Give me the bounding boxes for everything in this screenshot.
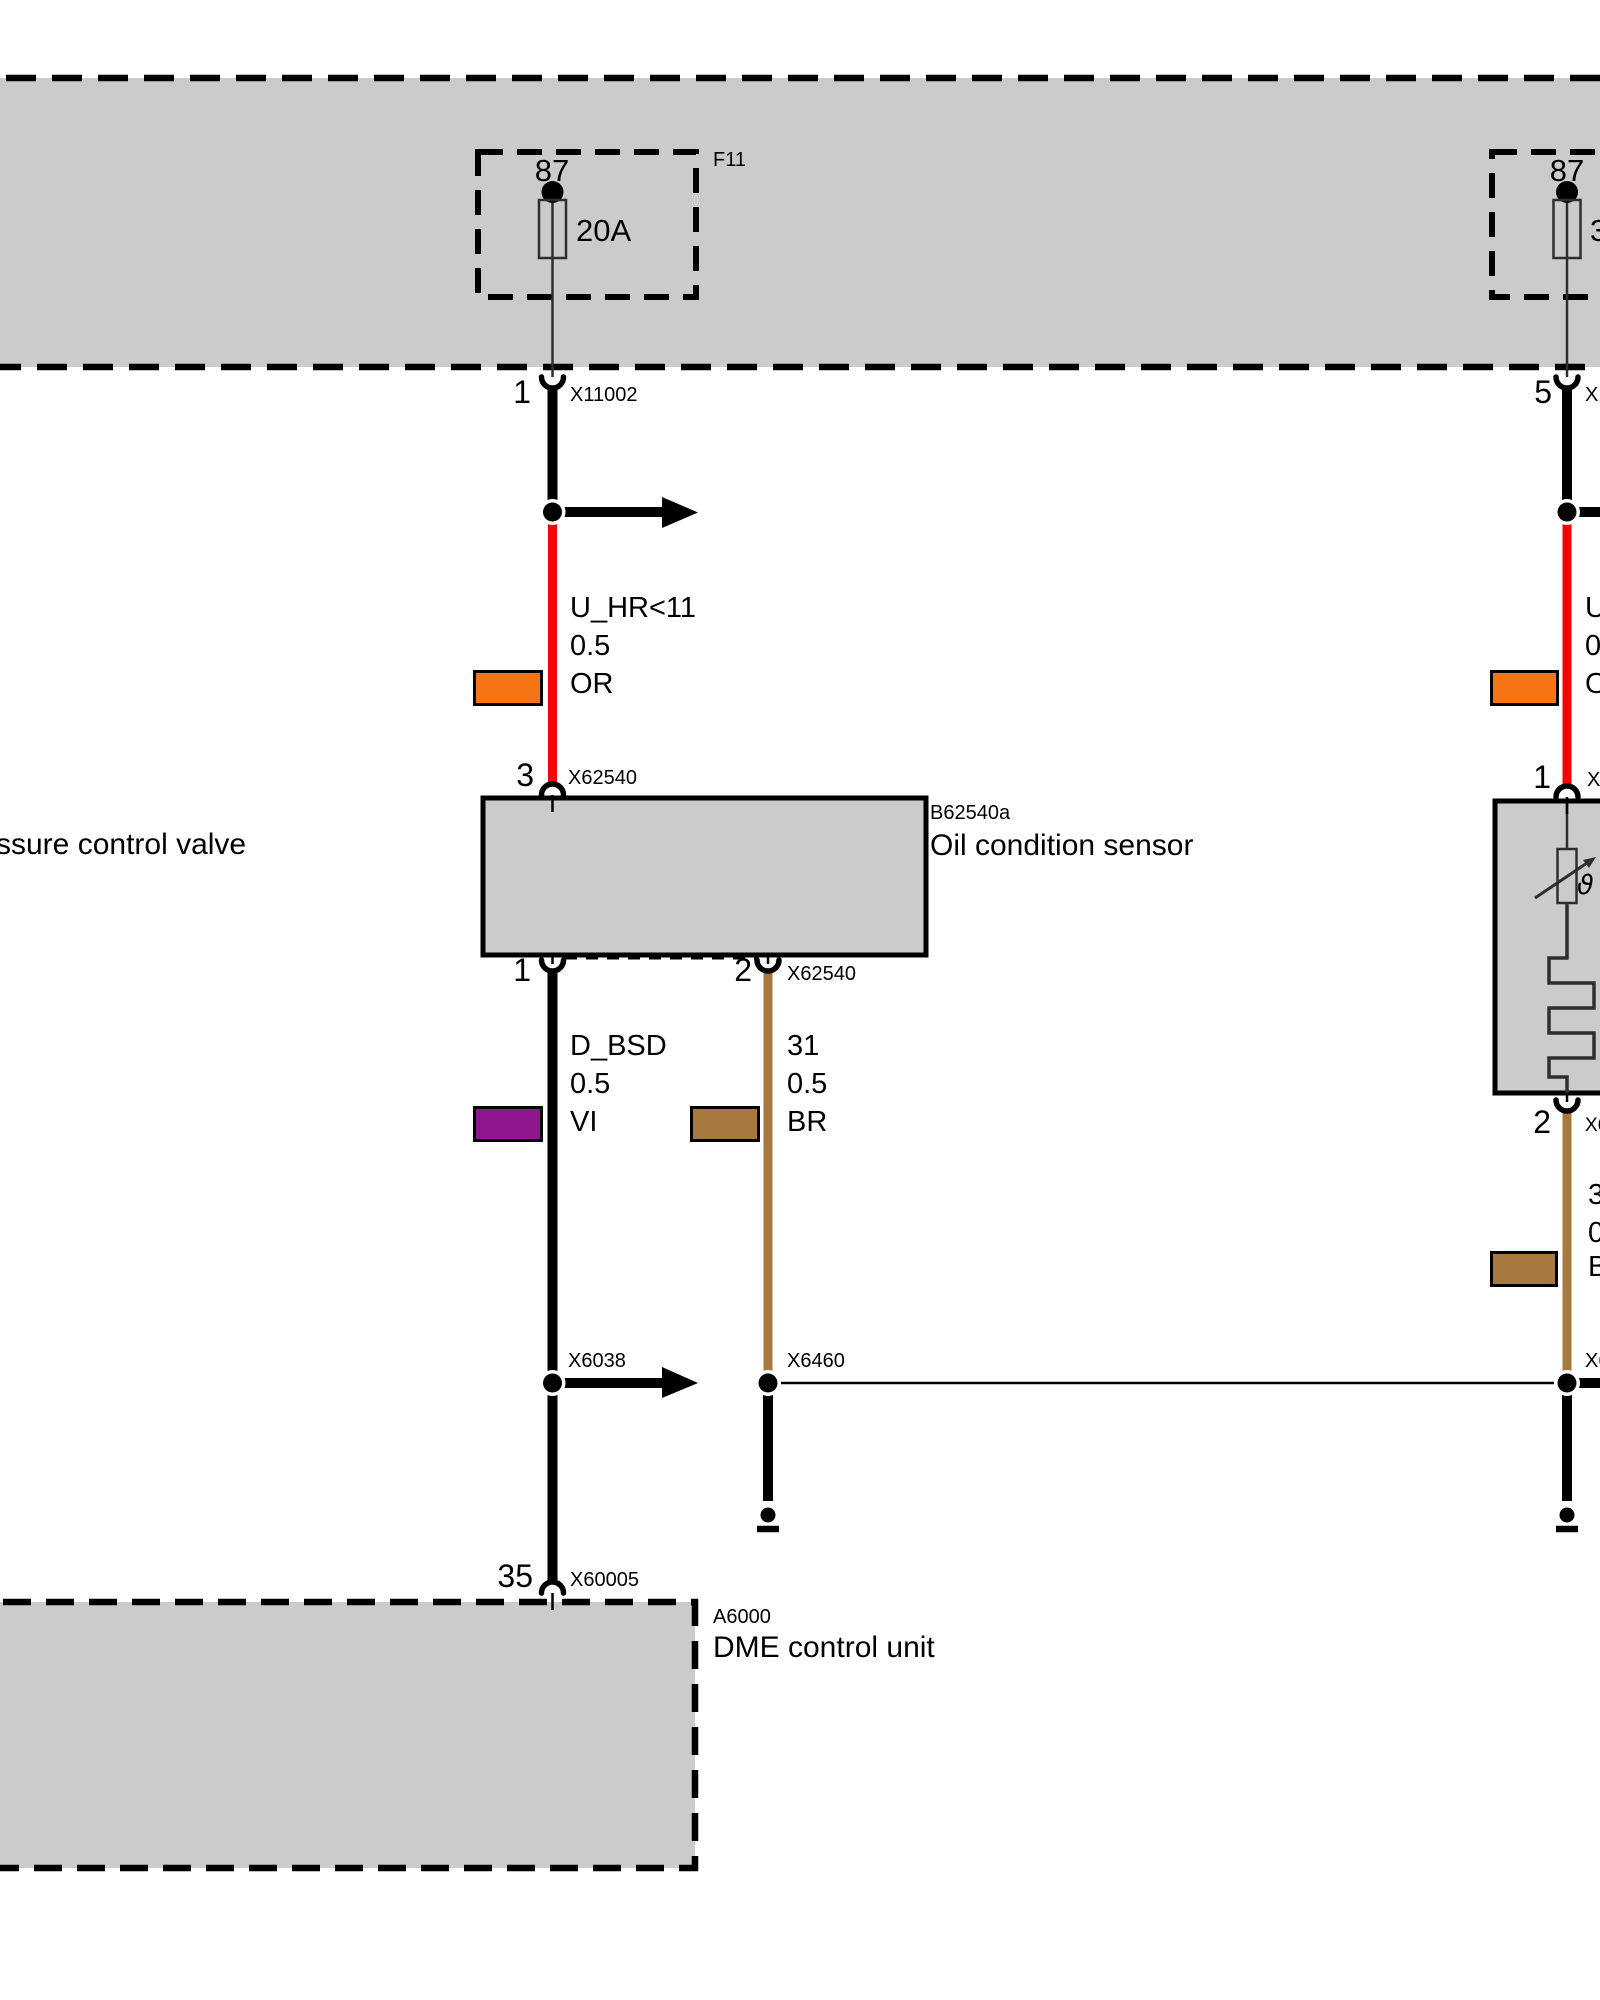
- arrow-right-icon: [662, 497, 698, 528]
- wire-color-code-label: OR: [570, 669, 614, 699]
- wire-color-swatch-violet: [473, 1106, 543, 1142]
- wire-signal-label-clipped: 3: [1588, 1180, 1600, 1210]
- wire-color-code-label: BR: [787, 1107, 827, 1137]
- connector-pin-number: 35: [478, 1560, 533, 1594]
- connector-code-x62540: X62540: [568, 768, 637, 789]
- wire-signal-label: D_BSD: [570, 1031, 667, 1061]
- wires: [553, 385, 1568, 1583]
- temperature-sensor-box: [1495, 801, 1600, 1093]
- wire-signal-label: U_HR<11: [570, 593, 696, 623]
- power-distribution-band: [0, 78, 1600, 380]
- wire-color-swatch-brown: [1490, 1251, 1558, 1287]
- wire-signal-label-clipped: U: [1585, 593, 1600, 623]
- connector-cup: [1556, 377, 1578, 388]
- junction-code-x6460: X6460: [787, 1351, 845, 1372]
- connector-pin-number: 3: [490, 759, 534, 793]
- connector-pin-number: 2: [708, 954, 752, 988]
- wire-color-swatch-brown: [690, 1106, 760, 1142]
- wire-cross-section-label: 0.5: [570, 631, 610, 661]
- wire-signal-label: 31: [787, 1031, 819, 1061]
- temperature-theta-symbol: ϑ: [1577, 872, 1594, 900]
- connector-pin-number: 1: [487, 954, 531, 988]
- oil-condition-sensor-box: [483, 798, 926, 955]
- fuse-right-terminal: 87: [1527, 155, 1600, 188]
- fuse-left-terminal: 87: [512, 155, 592, 188]
- control-unit-code: A6000: [713, 1607, 771, 1628]
- connector-symbols: [542, 377, 1579, 1593]
- connector-cup: [542, 784, 564, 795]
- wire-cross-section-label: 0.5: [570, 1069, 610, 1099]
- wire-cross-section-label-clipped: 0: [1588, 1218, 1600, 1248]
- junction-code-x6038: X6038: [568, 1351, 626, 1372]
- connector-pin-number: 1: [1507, 761, 1551, 795]
- fuse-left-code: F11: [713, 150, 746, 171]
- wire-color-code-label-clipped: B: [1588, 1252, 1600, 1282]
- dme-control-unit-box: [0, 1602, 695, 1868]
- fuse-left-rating: 20A: [576, 215, 631, 248]
- connector-code-clipped: X1: [1585, 385, 1600, 406]
- ground-terminals: [757, 1508, 1578, 1530]
- connector-code-clipped: X6: [1585, 1116, 1600, 1136]
- connector-pin-number: 5: [1508, 376, 1552, 410]
- wire-color-swatch-orange: [473, 670, 543, 706]
- component-code: B62540a: [930, 803, 1010, 824]
- fuse-right-rating: 3: [1590, 215, 1600, 248]
- wiring-diagram-canvas: F11 87 20A 87 3 1 X11002 5 X1 U_HR<11 0.…: [0, 0, 1600, 2000]
- connector-pin-number: 2: [1507, 1106, 1551, 1140]
- connector-cup: [1556, 786, 1578, 797]
- connector-cup: [542, 377, 564, 388]
- connector-cup: [542, 1582, 564, 1593]
- arrow-right-icon: [662, 1367, 698, 1398]
- wire-color-swatch-orange: [1490, 670, 1559, 706]
- connector-pin-number: 1: [487, 376, 531, 410]
- wire-color-code-label: VI: [570, 1107, 597, 1137]
- control-unit-name: DME control unit: [713, 1632, 935, 1664]
- wire-cross-section-label: 0.5: [787, 1069, 827, 1099]
- wire-color-code-label-clipped: O: [1585, 669, 1600, 699]
- wire-cross-section-label-clipped: 0: [1585, 631, 1600, 661]
- connector-code-x62540: X62540: [787, 964, 856, 985]
- junction-code-clipped: X6: [1585, 1351, 1600, 1372]
- component-name: Oil condition sensor: [930, 830, 1193, 862]
- connector-code-x11002: X11002: [570, 385, 637, 406]
- connector-code-clipped: X6: [1587, 770, 1600, 791]
- clipped-component-name: ssure control valve: [0, 829, 246, 861]
- schematic-linework: [0, 0, 1600, 2000]
- connector-code-x60005: X60005: [570, 1570, 639, 1591]
